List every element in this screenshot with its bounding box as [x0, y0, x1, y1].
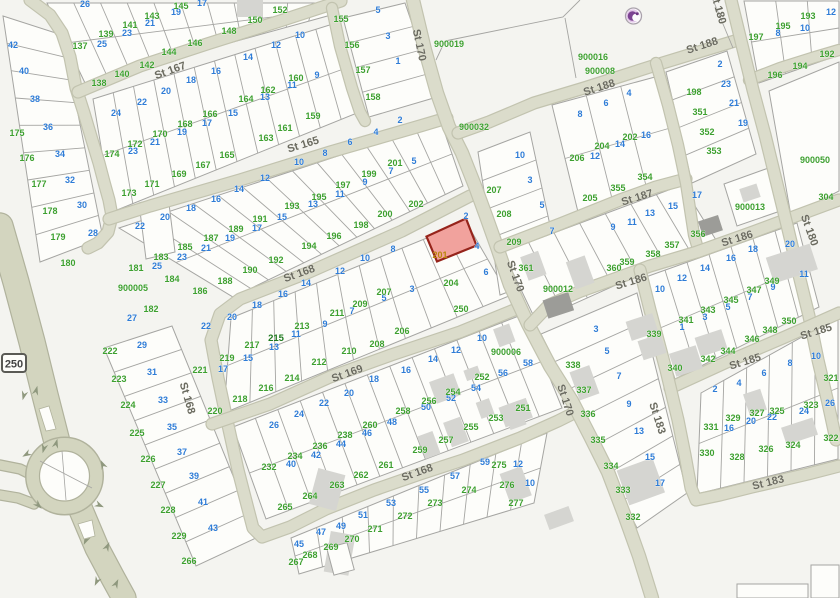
svg-text:34: 34 [55, 149, 65, 159]
svg-text:12: 12 [451, 345, 461, 355]
svg-text:181: 181 [128, 263, 143, 273]
svg-text:43: 43 [208, 523, 218, 533]
svg-text:188: 188 [217, 276, 232, 286]
svg-text:260: 260 [362, 420, 377, 430]
svg-text:5: 5 [411, 156, 416, 166]
svg-text:3: 3 [409, 284, 414, 294]
svg-text:234: 234 [287, 451, 302, 461]
svg-text:14: 14 [243, 52, 253, 62]
svg-text:222: 222 [102, 346, 117, 356]
svg-text:29: 29 [137, 340, 147, 350]
svg-text:262: 262 [353, 470, 368, 480]
svg-text:211: 211 [330, 308, 345, 318]
svg-text:12: 12 [590, 151, 600, 161]
svg-text:24: 24 [294, 409, 304, 419]
svg-text:215: 215 [268, 333, 285, 344]
svg-text:31: 31 [147, 367, 157, 377]
svg-text:10: 10 [811, 351, 821, 361]
svg-text:33: 33 [158, 395, 168, 405]
svg-text:265: 265 [277, 502, 292, 512]
svg-text:25: 25 [97, 39, 107, 49]
svg-text:3: 3 [593, 324, 598, 334]
svg-text:208: 208 [496, 209, 511, 219]
svg-text:6: 6 [347, 137, 352, 147]
svg-text:162: 162 [260, 85, 275, 95]
svg-text:212: 212 [311, 357, 326, 367]
svg-text:342: 342 [700, 354, 715, 364]
svg-text:10: 10 [360, 253, 370, 263]
svg-text:179: 179 [50, 232, 65, 242]
svg-text:192: 192 [268, 255, 283, 265]
svg-text:236: 236 [312, 441, 327, 451]
svg-text:58: 58 [523, 358, 533, 368]
svg-text:11: 11 [799, 269, 809, 279]
svg-text:5: 5 [604, 346, 609, 356]
svg-text:27: 27 [127, 313, 137, 323]
svg-text:355: 355 [610, 183, 625, 193]
svg-text:322: 322 [823, 433, 838, 443]
svg-text:44: 44 [336, 439, 346, 449]
svg-text:269: 269 [323, 542, 338, 552]
svg-text:20: 20 [785, 239, 795, 249]
svg-text:328: 328 [729, 452, 744, 462]
svg-text:324: 324 [785, 440, 800, 450]
svg-text:3: 3 [527, 175, 532, 185]
svg-text:12: 12 [335, 266, 345, 276]
svg-text:169: 169 [171, 169, 186, 179]
svg-text:158: 158 [365, 92, 380, 102]
svg-text:187: 187 [203, 233, 218, 243]
svg-text:42: 42 [311, 450, 321, 460]
svg-text:20: 20 [344, 388, 354, 398]
svg-text:139: 139 [98, 29, 113, 39]
svg-text:1: 1 [395, 56, 400, 66]
svg-text:329: 329 [725, 413, 740, 423]
svg-text:228: 228 [160, 505, 175, 515]
svg-text:272: 272 [397, 511, 412, 521]
svg-text:159: 159 [305, 111, 320, 121]
svg-text:201: 201 [432, 250, 447, 260]
svg-text:150: 150 [247, 15, 262, 25]
svg-text:338: 338 [565, 360, 580, 370]
svg-text:232: 232 [261, 462, 276, 472]
svg-text:28: 28 [88, 228, 98, 238]
svg-text:16: 16 [211, 194, 221, 204]
svg-text:168: 168 [177, 119, 192, 129]
svg-text:142: 142 [139, 60, 154, 70]
svg-text:334: 334 [603, 461, 618, 471]
svg-text:193: 193 [800, 11, 815, 21]
svg-text:253: 253 [488, 413, 503, 423]
svg-text:15: 15 [228, 108, 238, 118]
svg-text:304: 304 [818, 192, 833, 202]
svg-text:54: 54 [471, 383, 481, 393]
svg-text:12: 12 [826, 7, 836, 17]
svg-text:177: 177 [31, 179, 46, 189]
svg-text:22: 22 [135, 221, 145, 231]
svg-text:340: 340 [667, 363, 682, 373]
svg-text:210: 210 [341, 346, 356, 356]
svg-text:5: 5 [539, 200, 544, 210]
svg-text:165: 165 [219, 150, 234, 160]
svg-text:5: 5 [375, 5, 380, 15]
svg-text:16: 16 [724, 423, 734, 433]
svg-text:189: 189 [228, 224, 243, 234]
svg-text:10: 10 [655, 284, 665, 294]
svg-text:57: 57 [450, 471, 460, 481]
svg-text:200: 200 [377, 209, 392, 219]
svg-text:184: 184 [164, 274, 179, 284]
svg-text:23: 23 [721, 79, 731, 89]
svg-text:264: 264 [302, 491, 317, 501]
svg-text:900016: 900016 [578, 52, 608, 62]
svg-text:11: 11 [627, 217, 637, 227]
svg-text:331: 331 [703, 422, 718, 432]
svg-text:40: 40 [19, 66, 29, 76]
svg-text:10: 10 [294, 157, 304, 167]
svg-text:180: 180 [60, 258, 75, 268]
svg-text:4: 4 [474, 241, 479, 251]
svg-text:2: 2 [397, 115, 402, 125]
svg-text:20: 20 [227, 312, 237, 322]
svg-text:226: 226 [140, 454, 155, 464]
svg-text:53: 53 [386, 498, 396, 508]
svg-text:49: 49 [336, 521, 346, 531]
svg-text:186: 186 [192, 286, 207, 296]
svg-text:206: 206 [569, 153, 584, 163]
svg-text:221: 221 [192, 365, 207, 375]
svg-text:9: 9 [626, 399, 631, 409]
svg-text:360: 360 [606, 263, 621, 273]
svg-text:175: 175 [9, 128, 24, 138]
svg-text:51: 51 [358, 510, 368, 520]
svg-text:347: 347 [746, 285, 761, 295]
svg-text:166: 166 [202, 109, 217, 119]
svg-text:356: 356 [690, 229, 705, 239]
svg-text:198: 198 [353, 220, 368, 230]
svg-text:900005: 900005 [118, 283, 148, 293]
svg-text:198: 198 [686, 87, 701, 97]
svg-text:271: 271 [367, 524, 382, 534]
svg-text:208: 208 [369, 339, 384, 349]
svg-text:900013: 900013 [735, 202, 765, 212]
svg-text:15: 15 [645, 452, 655, 462]
svg-text:17: 17 [692, 190, 702, 200]
svg-text:171: 171 [144, 179, 159, 189]
svg-text:357: 357 [664, 240, 679, 250]
svg-text:25: 25 [152, 261, 162, 271]
svg-text:251: 251 [515, 403, 530, 413]
svg-text:59: 59 [480, 457, 490, 467]
svg-text:185: 185 [177, 242, 192, 252]
svg-text:6: 6 [483, 267, 488, 277]
svg-text:2: 2 [712, 384, 717, 394]
svg-text:273: 273 [427, 498, 442, 508]
svg-text:167: 167 [195, 160, 210, 170]
svg-text:11: 11 [335, 189, 345, 199]
svg-text:7: 7 [616, 371, 621, 381]
svg-text:47: 47 [316, 527, 326, 537]
svg-text:196: 196 [326, 231, 341, 241]
svg-text:176: 176 [19, 153, 34, 163]
svg-text:250: 250 [453, 304, 468, 314]
svg-text:209: 209 [506, 237, 521, 247]
svg-text:325: 325 [769, 406, 784, 416]
svg-text:351: 351 [692, 107, 707, 117]
svg-text:194: 194 [301, 241, 316, 251]
svg-text:224: 224 [120, 400, 135, 410]
svg-text:35: 35 [167, 422, 177, 432]
svg-text:207: 207 [376, 287, 391, 297]
svg-text:12: 12 [513, 459, 523, 469]
svg-text:24: 24 [111, 108, 121, 118]
svg-text:197: 197 [748, 32, 763, 42]
svg-text:20: 20 [160, 212, 170, 222]
svg-text:343: 343 [700, 305, 715, 315]
svg-text:220: 220 [207, 406, 222, 416]
svg-text:348: 348 [762, 325, 777, 335]
svg-text:8: 8 [787, 358, 792, 368]
svg-text:268: 268 [302, 550, 317, 560]
svg-text:174: 174 [104, 149, 119, 159]
svg-text:191: 191 [252, 214, 267, 224]
svg-text:256: 256 [421, 396, 436, 406]
svg-text:341: 341 [678, 315, 693, 325]
svg-text:182: 182 [143, 304, 158, 314]
svg-text:161: 161 [277, 123, 292, 133]
svg-text:21: 21 [201, 243, 211, 253]
svg-text:12: 12 [271, 40, 281, 50]
svg-text:216: 216 [258, 383, 273, 393]
svg-text:145: 145 [173, 1, 188, 11]
svg-text:144: 144 [161, 47, 176, 57]
svg-text:17: 17 [655, 478, 665, 488]
svg-text:332: 332 [625, 512, 640, 522]
svg-text:30: 30 [77, 200, 87, 210]
svg-text:12: 12 [677, 273, 687, 283]
svg-text:323: 323 [803, 400, 818, 410]
svg-text:227: 227 [150, 480, 165, 490]
svg-text:9: 9 [314, 70, 319, 80]
svg-text:18: 18 [748, 244, 758, 254]
svg-text:277: 277 [508, 498, 523, 508]
svg-text:336: 336 [580, 409, 595, 419]
svg-text:321: 321 [823, 373, 838, 383]
svg-text:23: 23 [177, 252, 187, 262]
svg-text:137: 137 [72, 41, 87, 51]
svg-text:190: 190 [242, 265, 257, 275]
svg-text:19: 19 [225, 233, 235, 243]
svg-text:37: 37 [177, 447, 187, 457]
svg-text:217: 217 [244, 340, 259, 350]
svg-text:164: 164 [238, 94, 253, 104]
svg-text:10: 10 [525, 478, 535, 488]
svg-text:6: 6 [761, 368, 766, 378]
svg-text:192: 192 [819, 49, 834, 59]
svg-text:223: 223 [111, 374, 126, 384]
svg-text:22: 22 [319, 398, 329, 408]
svg-text:26: 26 [825, 398, 835, 408]
svg-text:218: 218 [232, 394, 247, 404]
svg-text:229: 229 [171, 531, 186, 541]
svg-text:39: 39 [189, 471, 199, 481]
svg-text:8: 8 [390, 244, 395, 254]
svg-text:170: 170 [152, 129, 167, 139]
svg-text:8: 8 [577, 109, 582, 119]
svg-text:20: 20 [161, 86, 171, 96]
svg-text:15: 15 [243, 353, 253, 363]
svg-text:257: 257 [438, 435, 453, 445]
svg-text:346: 346 [744, 334, 759, 344]
svg-text:274: 274 [461, 485, 476, 495]
svg-text:213: 213 [294, 321, 309, 331]
svg-text:330: 330 [699, 448, 714, 458]
svg-text:204: 204 [594, 141, 609, 151]
svg-text:350: 350 [781, 316, 796, 326]
svg-text:138: 138 [91, 78, 106, 88]
svg-text:26: 26 [80, 0, 90, 9]
svg-text:199: 199 [361, 169, 376, 179]
svg-text:21: 21 [729, 98, 739, 108]
svg-text:9: 9 [322, 319, 327, 329]
svg-text:17: 17 [218, 364, 228, 374]
svg-text:202: 202 [408, 199, 423, 209]
svg-text:900006: 900006 [491, 347, 521, 357]
svg-text:250: 250 [5, 359, 23, 371]
svg-text:22: 22 [137, 97, 147, 107]
svg-text:32: 32 [65, 175, 75, 185]
svg-text:201: 201 [387, 158, 402, 168]
svg-text:16: 16 [641, 130, 651, 140]
svg-text:16: 16 [726, 253, 736, 263]
svg-text:4: 4 [373, 127, 378, 137]
svg-text:219: 219 [219, 353, 234, 363]
svg-text:146: 146 [187, 38, 202, 48]
svg-text:263: 263 [329, 480, 344, 490]
svg-text:9: 9 [610, 222, 615, 232]
svg-text:209: 209 [352, 299, 367, 309]
svg-text:259: 259 [412, 445, 427, 455]
svg-text:194: 194 [792, 61, 807, 71]
svg-text:225: 225 [129, 428, 144, 438]
svg-text:163: 163 [258, 133, 273, 143]
svg-text:4: 4 [626, 88, 631, 98]
svg-text:2: 2 [717, 59, 722, 69]
svg-text:16: 16 [401, 365, 411, 375]
svg-text:207: 207 [486, 185, 501, 195]
svg-text:327: 327 [749, 408, 764, 418]
svg-text:900019: 900019 [434, 39, 464, 49]
svg-text:267: 267 [288, 557, 303, 567]
svg-text:214: 214 [284, 373, 299, 383]
svg-text:193: 193 [284, 201, 299, 211]
svg-text:276: 276 [499, 480, 514, 490]
svg-text:337: 337 [576, 385, 591, 395]
svg-text:183: 183 [153, 252, 168, 262]
svg-text:196: 196 [767, 70, 782, 80]
svg-text:148: 148 [221, 26, 236, 36]
svg-text:255: 255 [463, 422, 478, 432]
svg-text:157: 157 [355, 65, 370, 75]
svg-text:204: 204 [443, 278, 458, 288]
svg-text:160: 160 [288, 73, 303, 83]
svg-text:261: 261 [378, 460, 393, 470]
svg-text:3: 3 [385, 31, 390, 41]
svg-text:140: 140 [114, 69, 129, 79]
svg-text:155: 155 [333, 14, 348, 24]
svg-text:900032: 900032 [459, 122, 489, 132]
svg-text:152: 152 [272, 5, 287, 15]
svg-text:18: 18 [369, 374, 379, 384]
svg-text:900008: 900008 [585, 66, 615, 76]
svg-text:14: 14 [234, 184, 244, 194]
svg-text:18: 18 [186, 75, 196, 85]
svg-text:266: 266 [181, 556, 196, 566]
svg-text:48: 48 [387, 417, 397, 427]
svg-text:56: 56 [498, 368, 508, 378]
svg-text:345: 345 [723, 295, 738, 305]
svg-text:10: 10 [295, 30, 305, 40]
svg-text:17: 17 [202, 118, 212, 128]
svg-text:335: 335 [590, 435, 605, 445]
svg-text:900012: 900012 [543, 284, 573, 294]
svg-text:195: 195 [311, 192, 326, 202]
svg-text:197: 197 [335, 180, 350, 190]
svg-text:12: 12 [260, 173, 270, 183]
svg-text:172: 172 [127, 139, 142, 149]
svg-text:8: 8 [322, 148, 327, 158]
svg-text:16: 16 [211, 66, 221, 76]
svg-text:349: 349 [764, 276, 779, 286]
svg-text:13: 13 [645, 208, 655, 218]
svg-text:17: 17 [252, 223, 262, 233]
svg-text:173: 173 [121, 188, 136, 198]
svg-text:143: 143 [144, 11, 159, 21]
svg-text:202: 202 [622, 132, 637, 142]
svg-text:41: 41 [198, 497, 208, 507]
svg-text:26: 26 [269, 420, 279, 430]
svg-text:238: 238 [337, 430, 352, 440]
svg-text:333: 333 [615, 485, 630, 495]
svg-text:55: 55 [419, 485, 429, 495]
svg-text:353: 353 [706, 146, 721, 156]
svg-text:13: 13 [634, 426, 644, 436]
svg-text:2: 2 [463, 211, 468, 221]
svg-text:270: 270 [344, 534, 359, 544]
svg-text:15: 15 [277, 212, 287, 222]
svg-text:10: 10 [800, 23, 810, 33]
svg-text:45: 45 [294, 539, 304, 549]
svg-text:42: 42 [8, 40, 18, 50]
svg-text:14: 14 [428, 354, 438, 364]
svg-text:206: 206 [394, 326, 409, 336]
svg-text:275: 275 [491, 460, 506, 470]
svg-text:6: 6 [603, 98, 608, 108]
svg-text:18: 18 [252, 300, 262, 310]
svg-text:36: 36 [43, 122, 53, 132]
svg-text:900050: 900050 [800, 155, 830, 165]
svg-text:15: 15 [668, 201, 678, 211]
svg-text:359: 359 [619, 257, 634, 267]
svg-text:252: 252 [474, 372, 489, 382]
svg-text:18: 18 [186, 203, 196, 213]
svg-text:14: 14 [700, 263, 710, 273]
svg-text:361: 361 [518, 263, 533, 273]
svg-text:19: 19 [738, 118, 748, 128]
svg-text:10: 10 [477, 333, 487, 343]
svg-text:4: 4 [736, 378, 741, 388]
svg-text:326: 326 [758, 444, 773, 454]
